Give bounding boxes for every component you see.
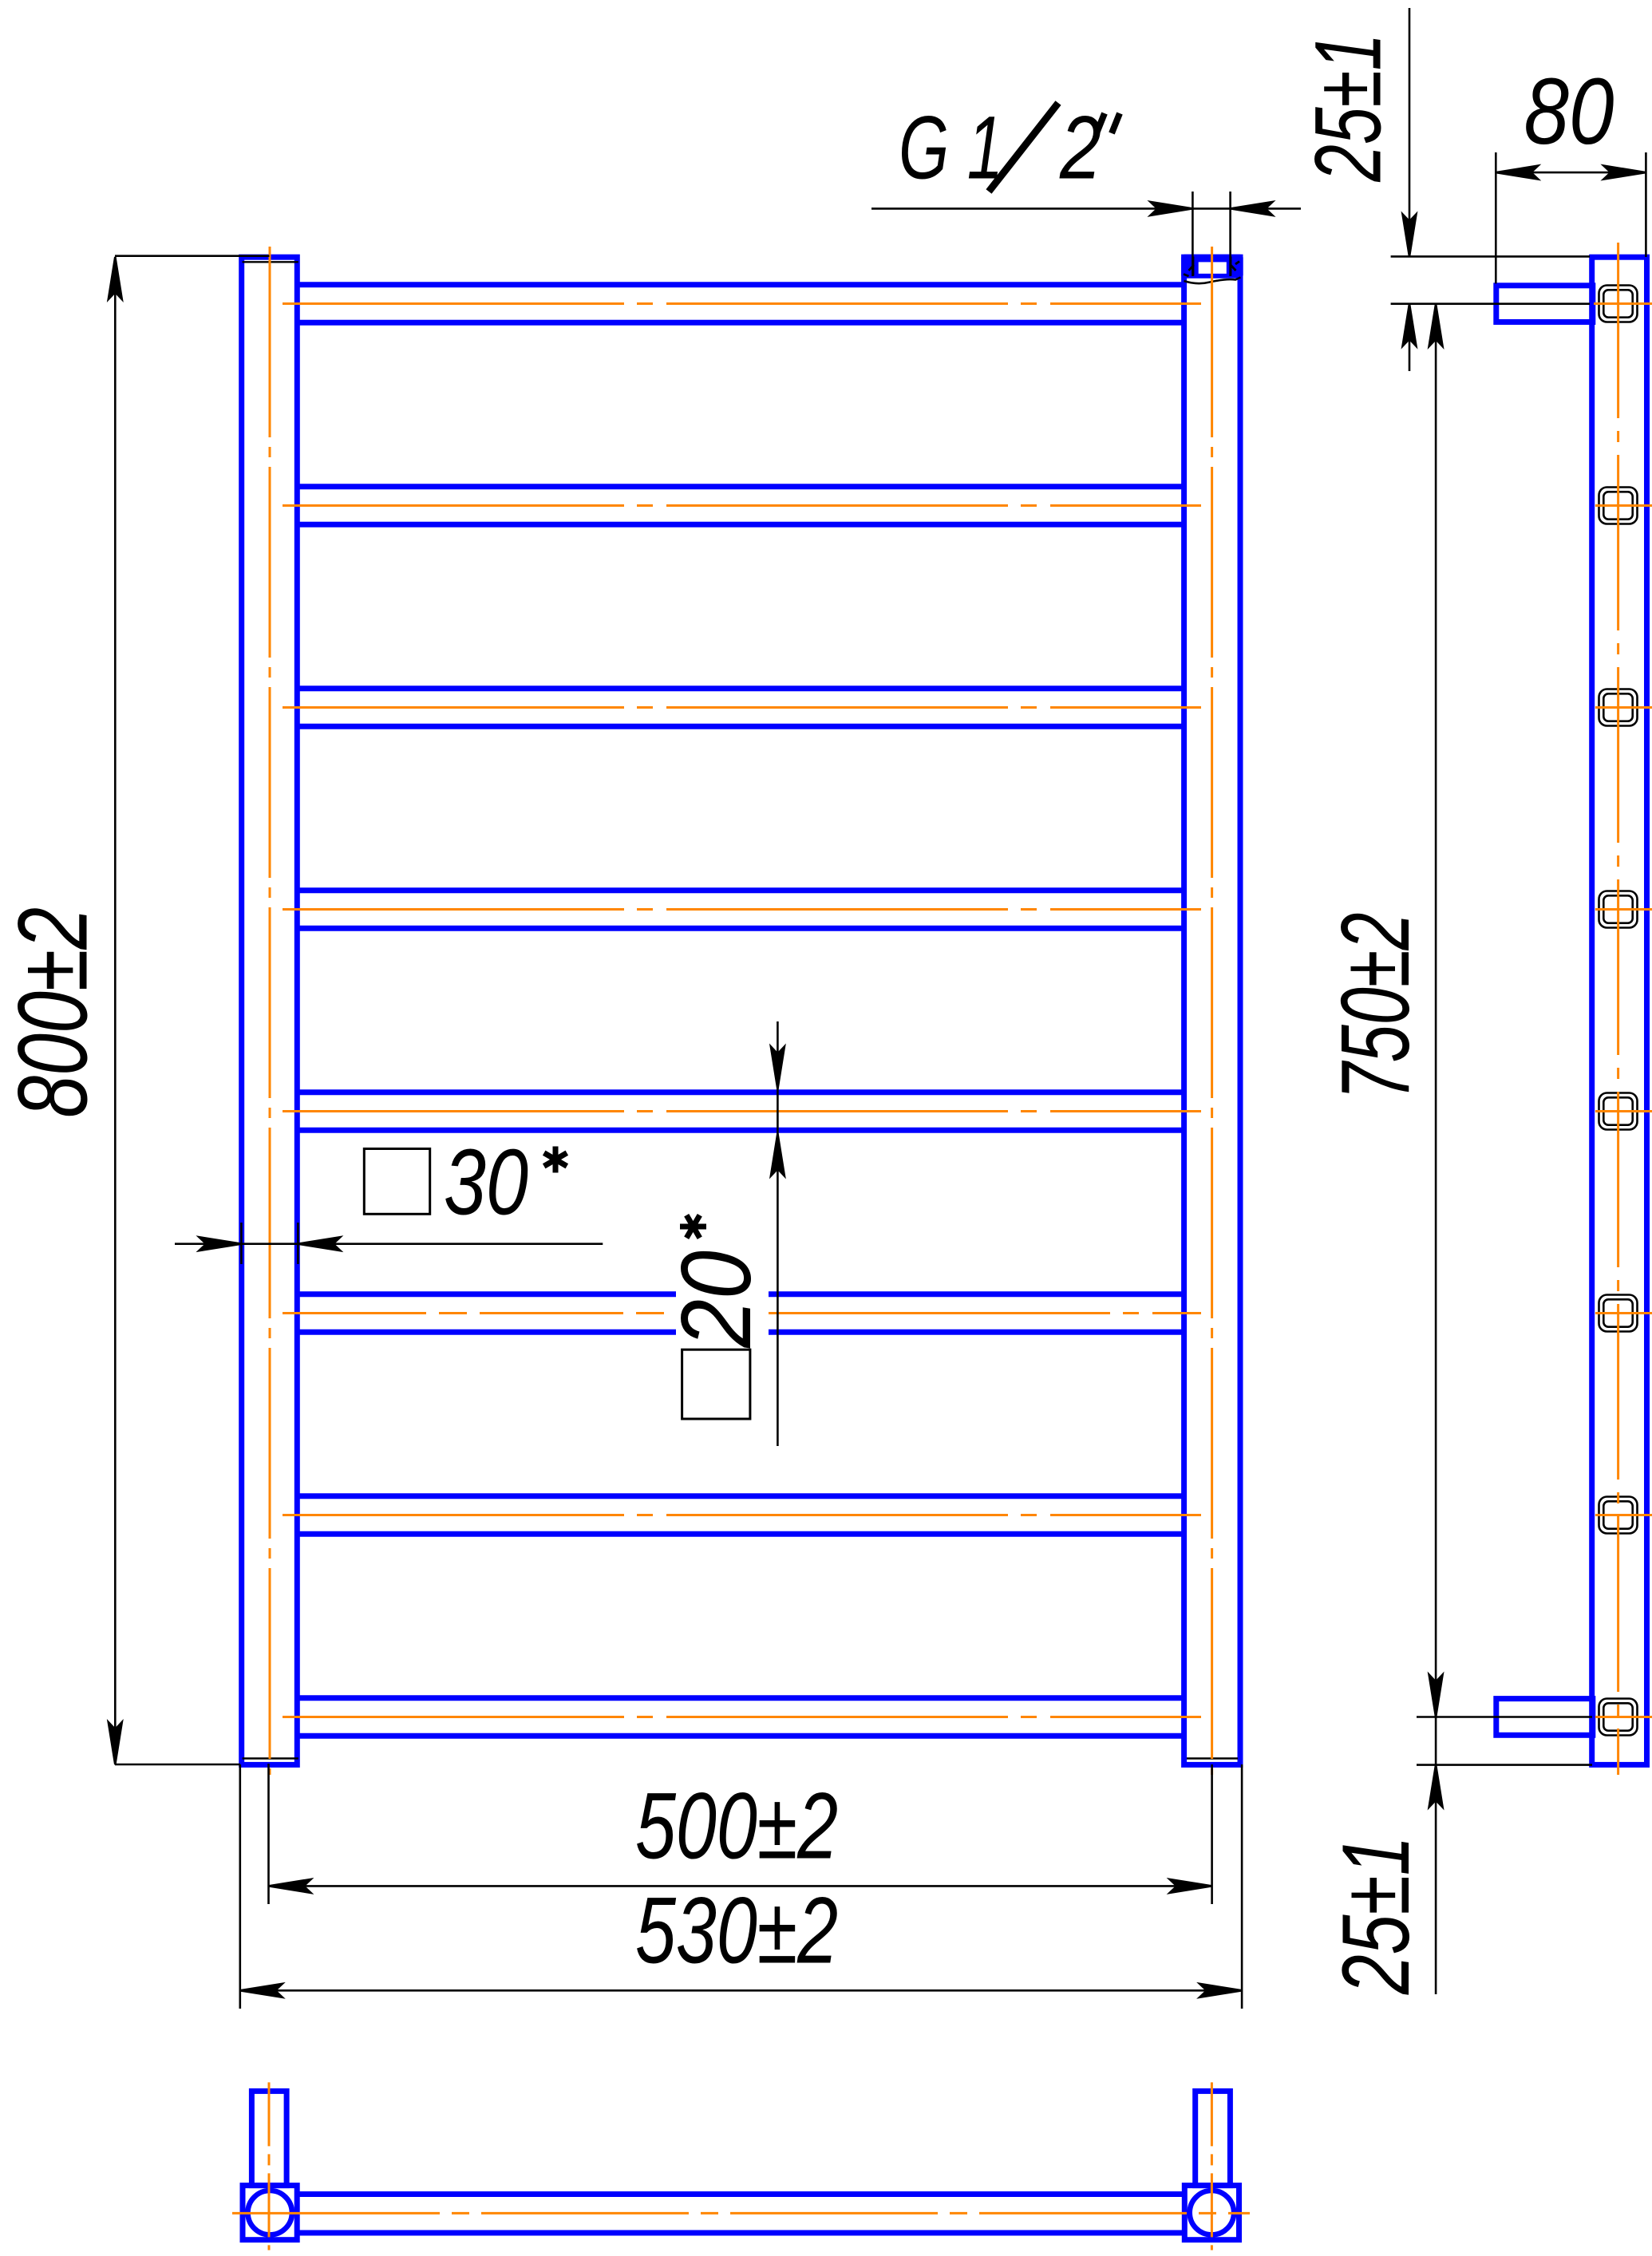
svg-text:25±1: 25±1 xyxy=(1296,34,1401,183)
svg-text:500±2: 500±2 xyxy=(635,1774,838,1879)
svg-text:2: 2 xyxy=(1059,97,1101,197)
svg-text:20: 20 xyxy=(662,1250,772,1349)
svg-text:530±2: 530±2 xyxy=(635,1879,838,1984)
svg-text:800±2: 800±2 xyxy=(0,907,109,1118)
svg-text:G 1: G 1 xyxy=(899,97,1003,197)
svg-text:30: 30 xyxy=(444,1130,528,1235)
svg-text:750±2: 750±2 xyxy=(1321,913,1429,1100)
svg-text:80: 80 xyxy=(1524,59,1614,164)
svg-text:25±1: 25±1 xyxy=(1322,1835,1429,1995)
